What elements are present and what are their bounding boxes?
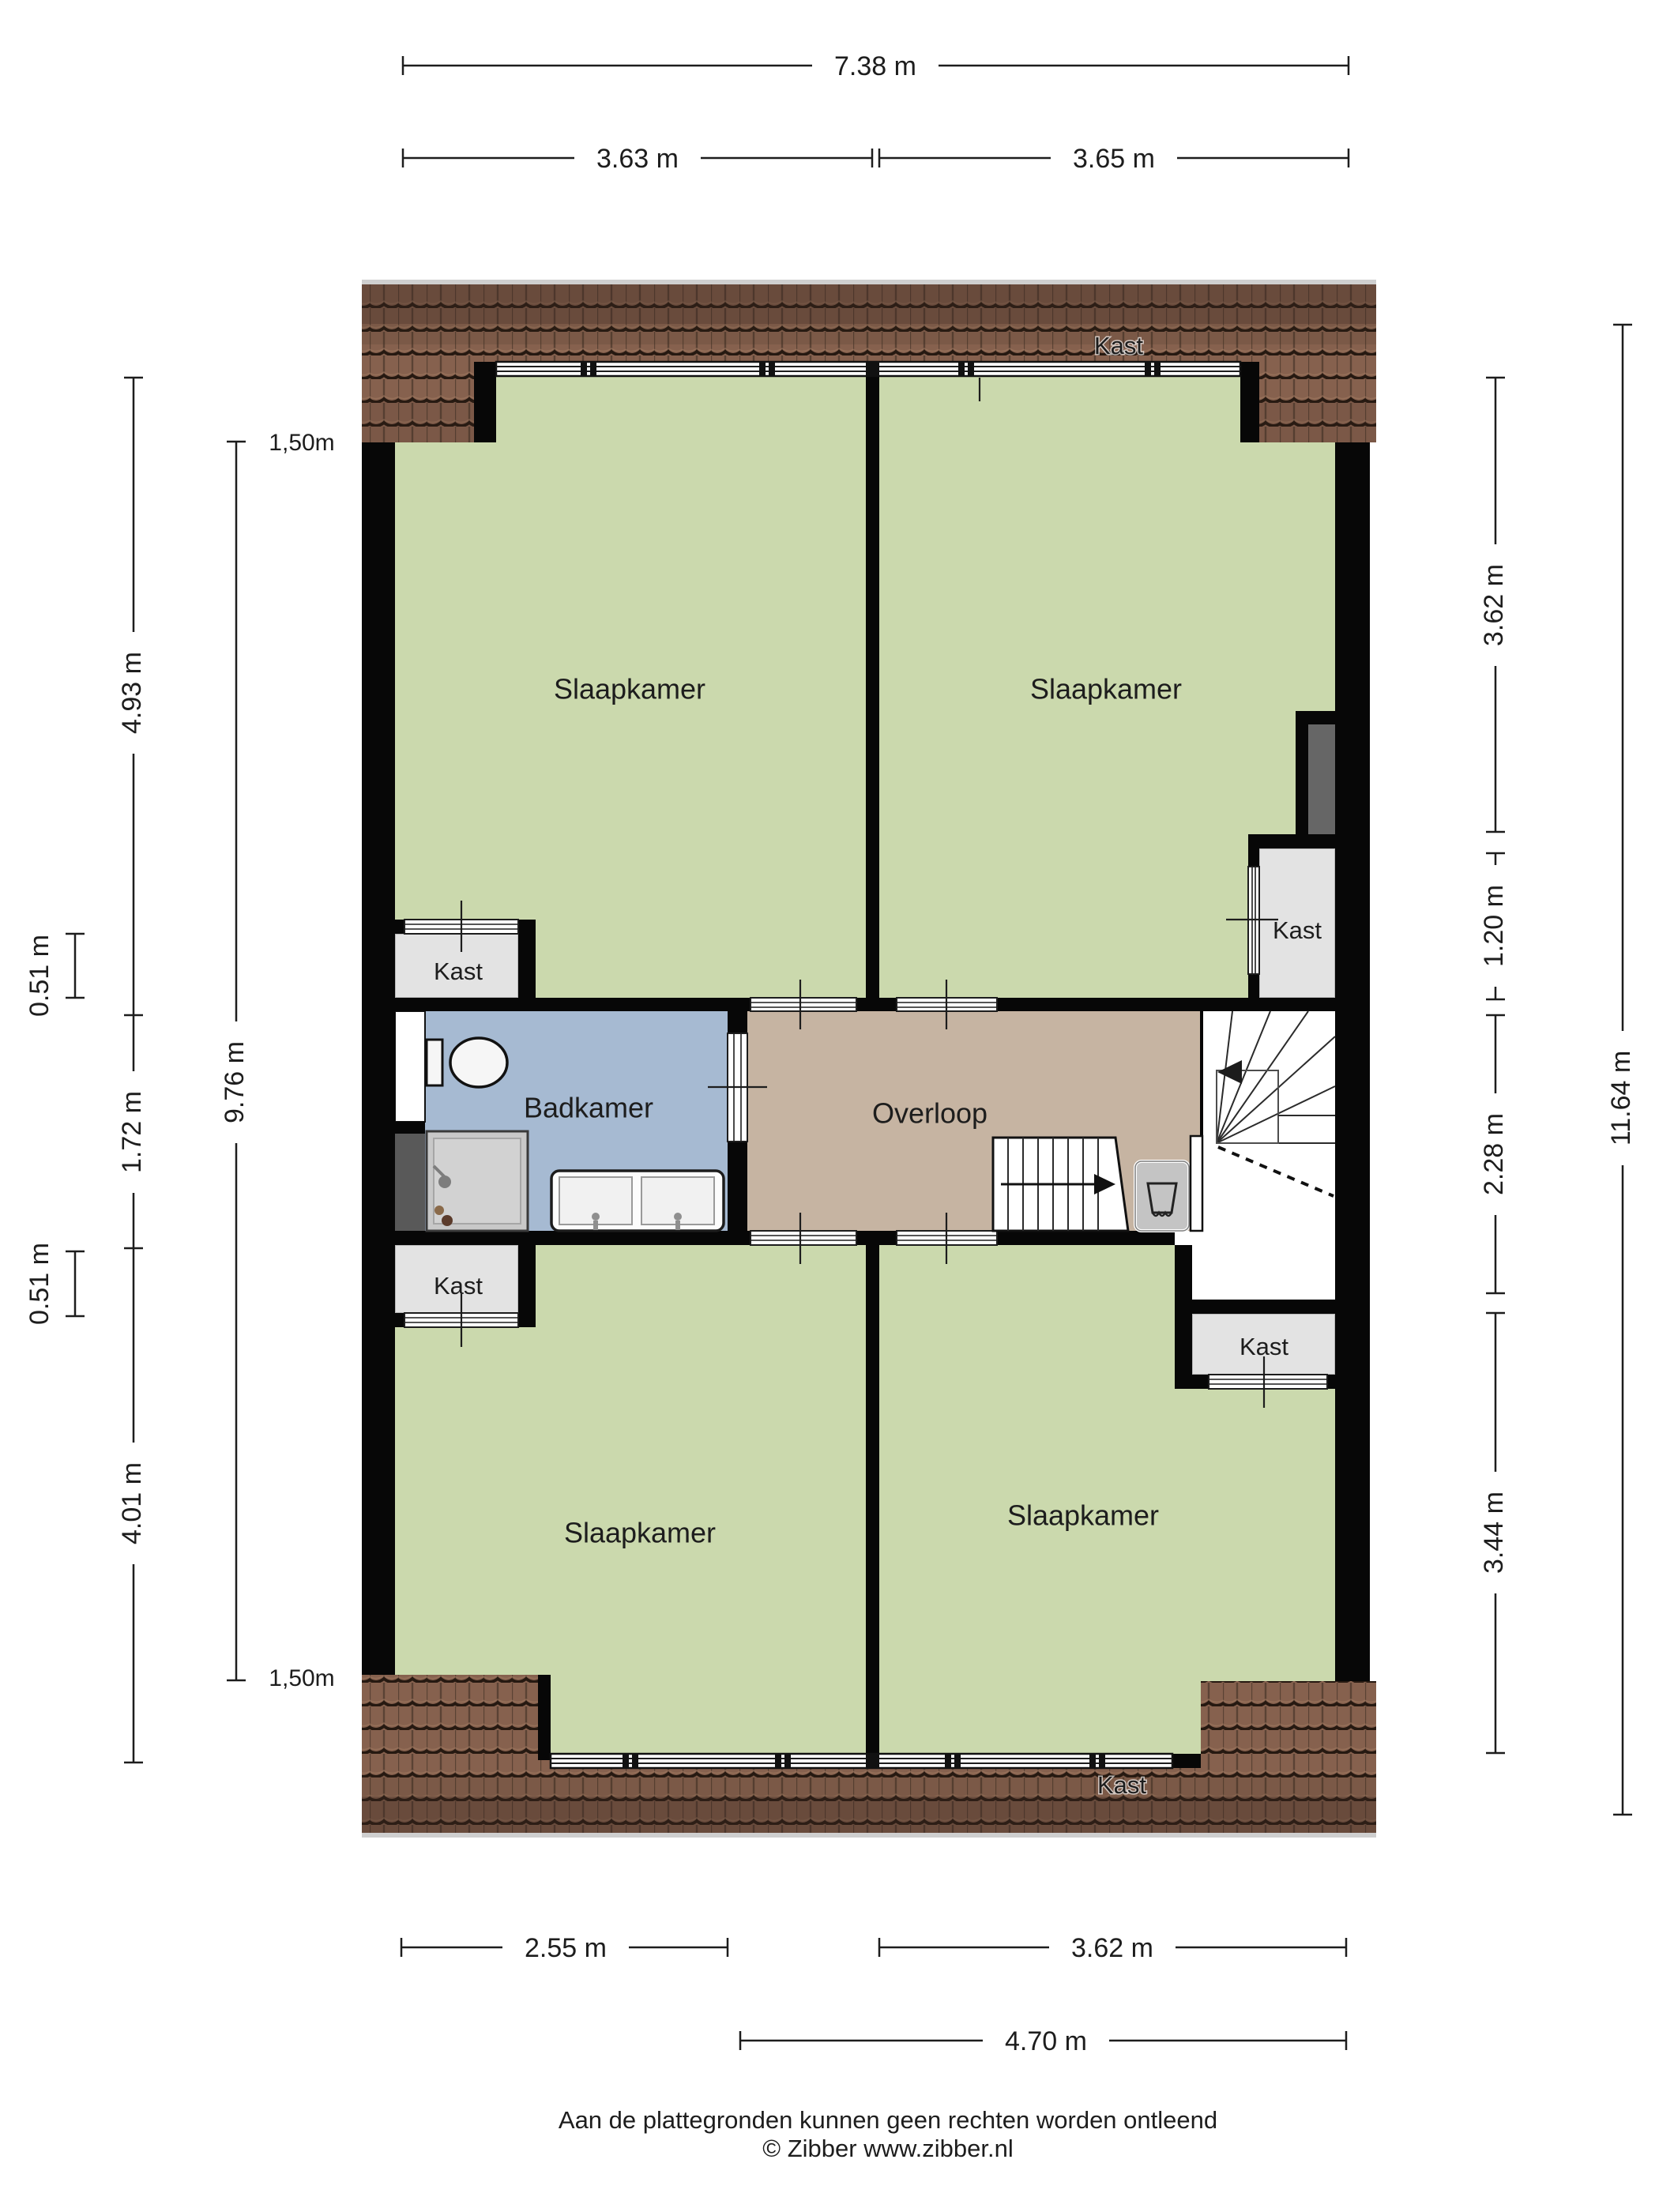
svg-text:3.62 m: 3.62 m bbox=[1071, 1933, 1153, 1963]
floorplan-drawing: Slaapkamer Slaapkamer Badkamer Overloop … bbox=[0, 0, 1659, 2212]
roof-step-bottom-right bbox=[1201, 1681, 1376, 1760]
svg-text:4.93 m: 4.93 m bbox=[117, 652, 147, 734]
bathroom-recess bbox=[395, 1011, 425, 1122]
knee-height-top: 1,50m bbox=[269, 430, 334, 456]
wall-notch bbox=[1308, 724, 1335, 834]
dim-right-inner: 3.62 m 1.20 m 2.28 m 3.44 m bbox=[1478, 378, 1513, 1753]
shower-icon bbox=[427, 1131, 528, 1231]
label-slaapkamer-bl: Slaapkamer bbox=[564, 1517, 716, 1549]
label-kast-left-upper: Kast bbox=[434, 957, 483, 985]
footer: Aan de plattegronden kunnen geen rechten… bbox=[559, 2106, 1217, 2162]
double-washbasin-icon bbox=[551, 1171, 724, 1231]
duct bbox=[395, 1134, 425, 1231]
label-kast-right-lower: Kast bbox=[1240, 1333, 1288, 1360]
stair-door-leaf bbox=[1191, 1136, 1202, 1231]
svg-text:3.62 m: 3.62 m bbox=[1479, 564, 1509, 646]
svg-text:3.65 m: 3.65 m bbox=[1073, 144, 1155, 174]
svg-text:4.70 m: 4.70 m bbox=[1005, 2026, 1087, 2056]
svg-text:0.51 m: 0.51 m bbox=[24, 935, 55, 1017]
svg-text:11.64 m: 11.64 m bbox=[1606, 1051, 1636, 1145]
label-slaapkamer-tl: Slaapkamer bbox=[554, 673, 705, 705]
floorplan-page: Slaapkamer Slaapkamer Badkamer Overloop … bbox=[0, 0, 1659, 2212]
dim-right-total: 11.64 m bbox=[1605, 325, 1640, 1815]
dim-bottom-left: 2.55 m bbox=[401, 1928, 728, 1967]
label-kast-roof-bottom: Kast bbox=[1097, 1771, 1146, 1799]
dim-bottom-total: 4.70 m bbox=[740, 2021, 1346, 2060]
rooms bbox=[395, 376, 1335, 1754]
dim-top-left: 3.63 m bbox=[403, 138, 872, 178]
label-slaapkamer-tr: Slaapkamer bbox=[1030, 673, 1182, 705]
roof-ridge-edge-bottom bbox=[362, 1833, 1376, 1838]
roof-ridge-edge-top bbox=[362, 280, 1376, 284]
dim-bottom-right: 3.62 m bbox=[879, 1928, 1346, 1967]
label-overloop: Overloop bbox=[872, 1097, 987, 1130]
laundry-chute-icon bbox=[1135, 1161, 1189, 1231]
dim-left-closets: 0.51 m 0.51 m bbox=[24, 934, 85, 1325]
label-slaapkamer-br: Slaapkamer bbox=[1007, 1499, 1159, 1532]
window-band-bottom bbox=[551, 1754, 1172, 1768]
label-kast-left-lower: Kast bbox=[434, 1272, 483, 1300]
svg-text:0.51 m: 0.51 m bbox=[24, 1243, 55, 1325]
svg-text:1.20 m: 1.20 m bbox=[1479, 885, 1509, 967]
knee-height-bottom: 1,50m bbox=[269, 1665, 334, 1691]
label-kast-roof-top: Kast bbox=[1094, 332, 1143, 359]
dim-top-total: 7.38 m bbox=[403, 46, 1349, 85]
svg-text:9.76 m: 9.76 m bbox=[220, 1041, 250, 1123]
svg-text:1.72 m: 1.72 m bbox=[117, 1091, 147, 1173]
dim-left-total: 9.76 m bbox=[219, 442, 254, 1680]
straight-stair-flight bbox=[993, 1138, 1128, 1231]
footer-copyright: © Zibber www.zibber.nl bbox=[762, 2135, 1013, 2162]
roof-step-bottom-left bbox=[362, 1675, 538, 1760]
label-badkamer: Badkamer bbox=[524, 1092, 653, 1124]
svg-text:2.28 m: 2.28 m bbox=[1479, 1113, 1509, 1195]
dim-left-inner: 4.93 m 1.72 m 4.01 m bbox=[116, 378, 151, 1762]
footer-disclaimer: Aan de plattegronden kunnen geen rechten… bbox=[559, 2106, 1217, 2134]
svg-text:3.44 m: 3.44 m bbox=[1479, 1492, 1509, 1574]
dim-top-right: 3.65 m bbox=[879, 138, 1349, 178]
svg-text:7.38 m: 7.38 m bbox=[834, 51, 916, 81]
svg-text:2.55 m: 2.55 m bbox=[525, 1933, 607, 1963]
label-kast-right-upper: Kast bbox=[1273, 916, 1322, 944]
svg-text:3.63 m: 3.63 m bbox=[596, 144, 679, 174]
svg-text:4.01 m: 4.01 m bbox=[117, 1462, 147, 1544]
toilet-icon bbox=[427, 1038, 507, 1087]
